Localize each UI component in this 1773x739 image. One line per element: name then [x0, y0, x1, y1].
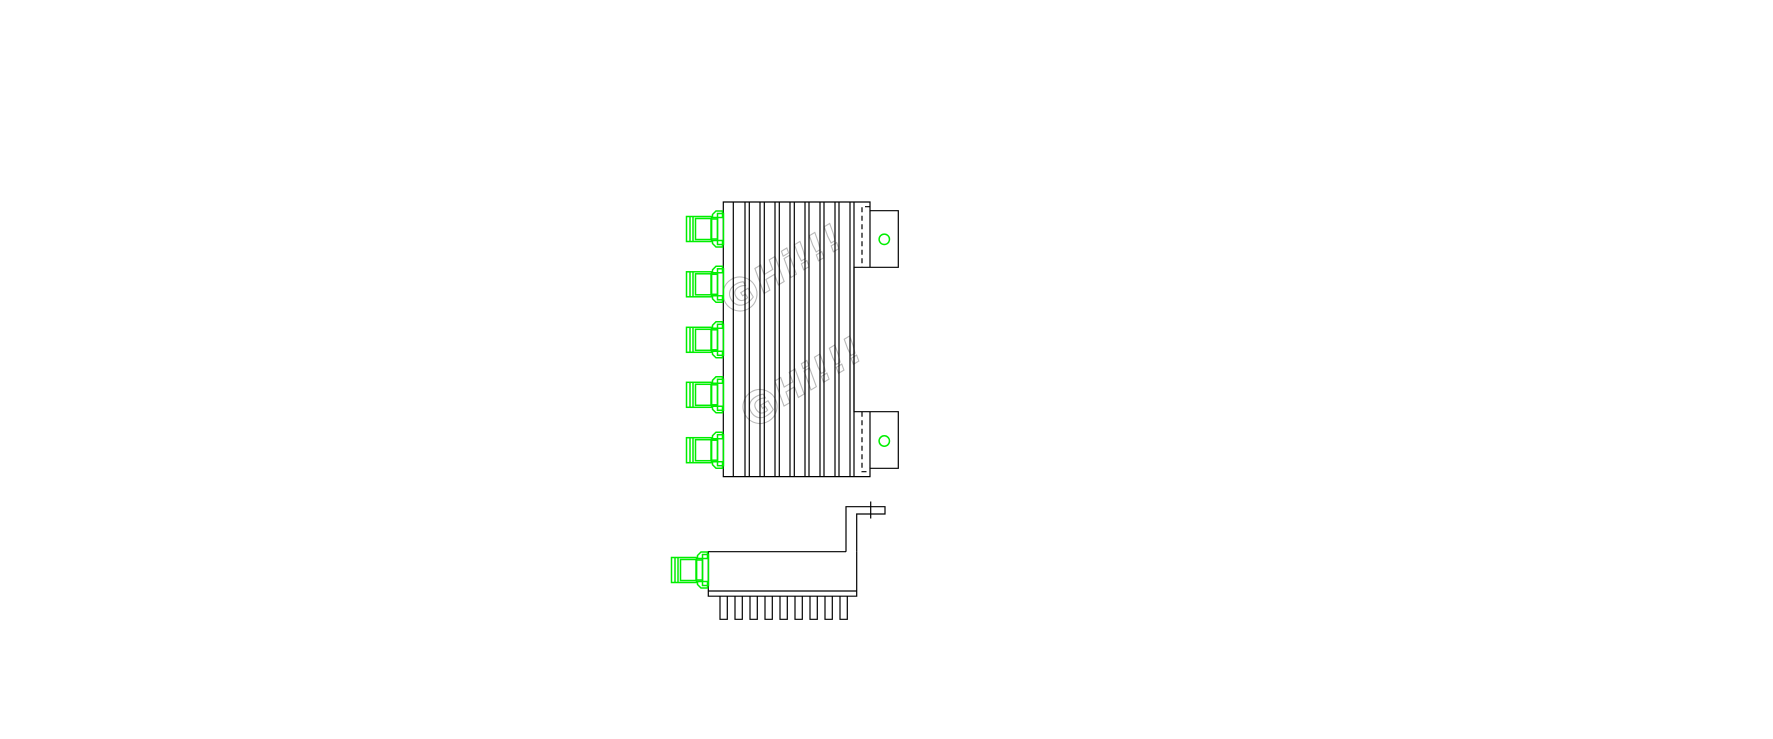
side-view [708, 502, 885, 620]
side-body-outline [708, 552, 856, 597]
coax-connector [687, 211, 724, 247]
watermark-text: Hi!!! [767, 329, 871, 414]
coax-connector [687, 266, 724, 302]
coax-connector [687, 377, 724, 413]
watermark-layer: G Hi!!! G Hi!!! [715, 217, 871, 434]
hidden-edge-dashed [862, 207, 870, 472]
watermark: G Hi!!! [715, 217, 851, 321]
mounting-hole [879, 234, 889, 244]
drawing-canvas: G Hi!!! G Hi!!! [0, 0, 1773, 739]
coax-connector [687, 322, 724, 358]
side-fins [720, 596, 847, 619]
bracket-outline [846, 507, 885, 552]
watermark-monogram: G [722, 274, 760, 315]
coax-connector-side [672, 552, 709, 588]
coax-connector [687, 432, 724, 468]
mounting-hole [879, 436, 889, 446]
